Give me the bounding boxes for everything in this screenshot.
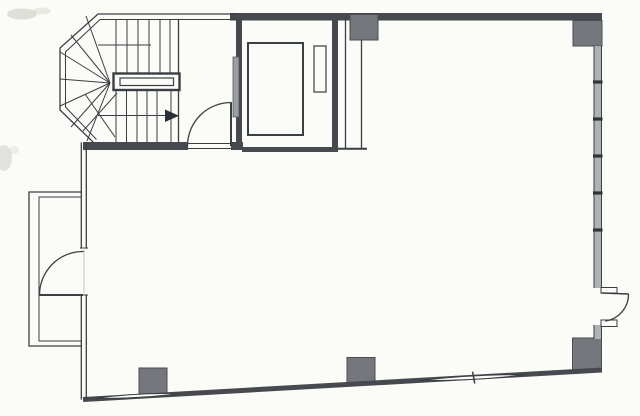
stair-treads-upper — [116, 20, 170, 75]
column-top-middle — [350, 15, 378, 41]
exterior-wall-left — [80, 143, 88, 399]
elevator-shaft — [233, 20, 338, 152]
lobby-wall-left — [83, 142, 188, 150]
stair-direction-arrow — [165, 110, 179, 123]
column-bottom-right — [573, 338, 602, 371]
exterior-wall-right — [593, 46, 629, 339]
elevator-landing-door — [233, 57, 239, 117]
exterior-door-right — [601, 288, 629, 327]
stair-handrail — [114, 74, 180, 91]
stair-winder-fan — [60, 16, 117, 141]
elevator-counterweight — [314, 46, 326, 92]
column-bottom-left — [139, 368, 167, 396]
exterior-wall-top — [230, 13, 602, 21]
shaft-wall-bottom — [242, 147, 332, 152]
balcony — [29, 192, 83, 346]
column-bottom-middle — [347, 358, 375, 384]
door-leaf — [602, 293, 629, 294]
elevator-car — [248, 43, 303, 135]
scan-smudges — [0, 8, 51, 172]
column-top-right — [573, 21, 602, 47]
columns — [139, 15, 602, 396]
floor-plan-scan — [0, 0, 640, 416]
wall-center-tick — [473, 372, 475, 384]
balcony-inner-rail — [39, 197, 81, 341]
floor-plan-svg — [0, 0, 640, 416]
stairwell — [60, 14, 237, 143]
lobby-door-swing — [188, 103, 232, 147]
balcony-door-swing — [40, 252, 84, 296]
door-swing — [606, 295, 629, 322]
shaft-wall-right — [332, 20, 338, 152]
balcony-outer-rail — [29, 192, 81, 346]
